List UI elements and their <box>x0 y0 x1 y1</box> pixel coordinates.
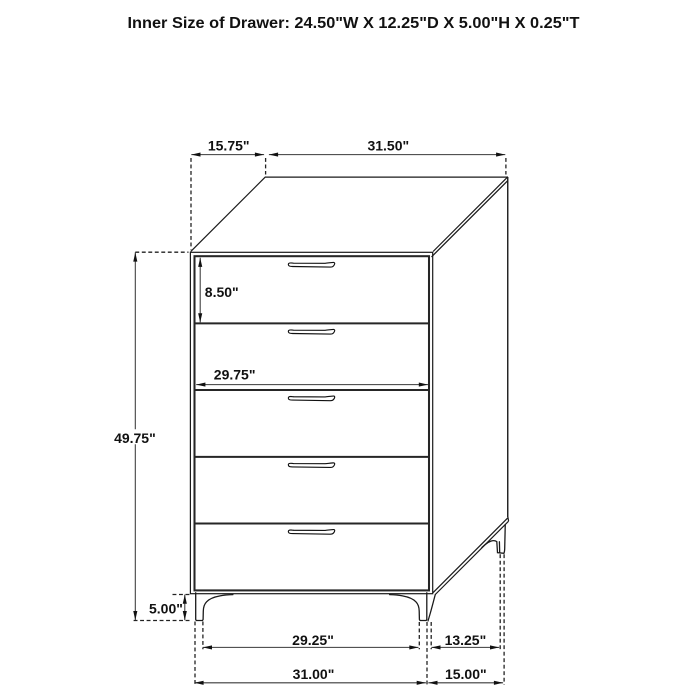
svg-text:29.75": 29.75" <box>214 367 256 383</box>
svg-text:5.00": 5.00" <box>149 601 183 617</box>
svg-text:15.00": 15.00" <box>445 666 487 682</box>
svg-text:Inner Size of Drawer: 24.50"W: Inner Size of Drawer: 24.50"W X 12.25"D … <box>128 15 580 32</box>
svg-text:29.25": 29.25" <box>292 632 334 648</box>
svg-text:13.25": 13.25" <box>445 632 487 648</box>
svg-text:15.75": 15.75" <box>208 137 250 153</box>
svg-text:31.50": 31.50" <box>367 137 409 153</box>
svg-text:31.00": 31.00" <box>293 666 335 682</box>
svg-text:8.50": 8.50" <box>205 284 239 300</box>
svg-text:49.75": 49.75" <box>114 430 156 446</box>
